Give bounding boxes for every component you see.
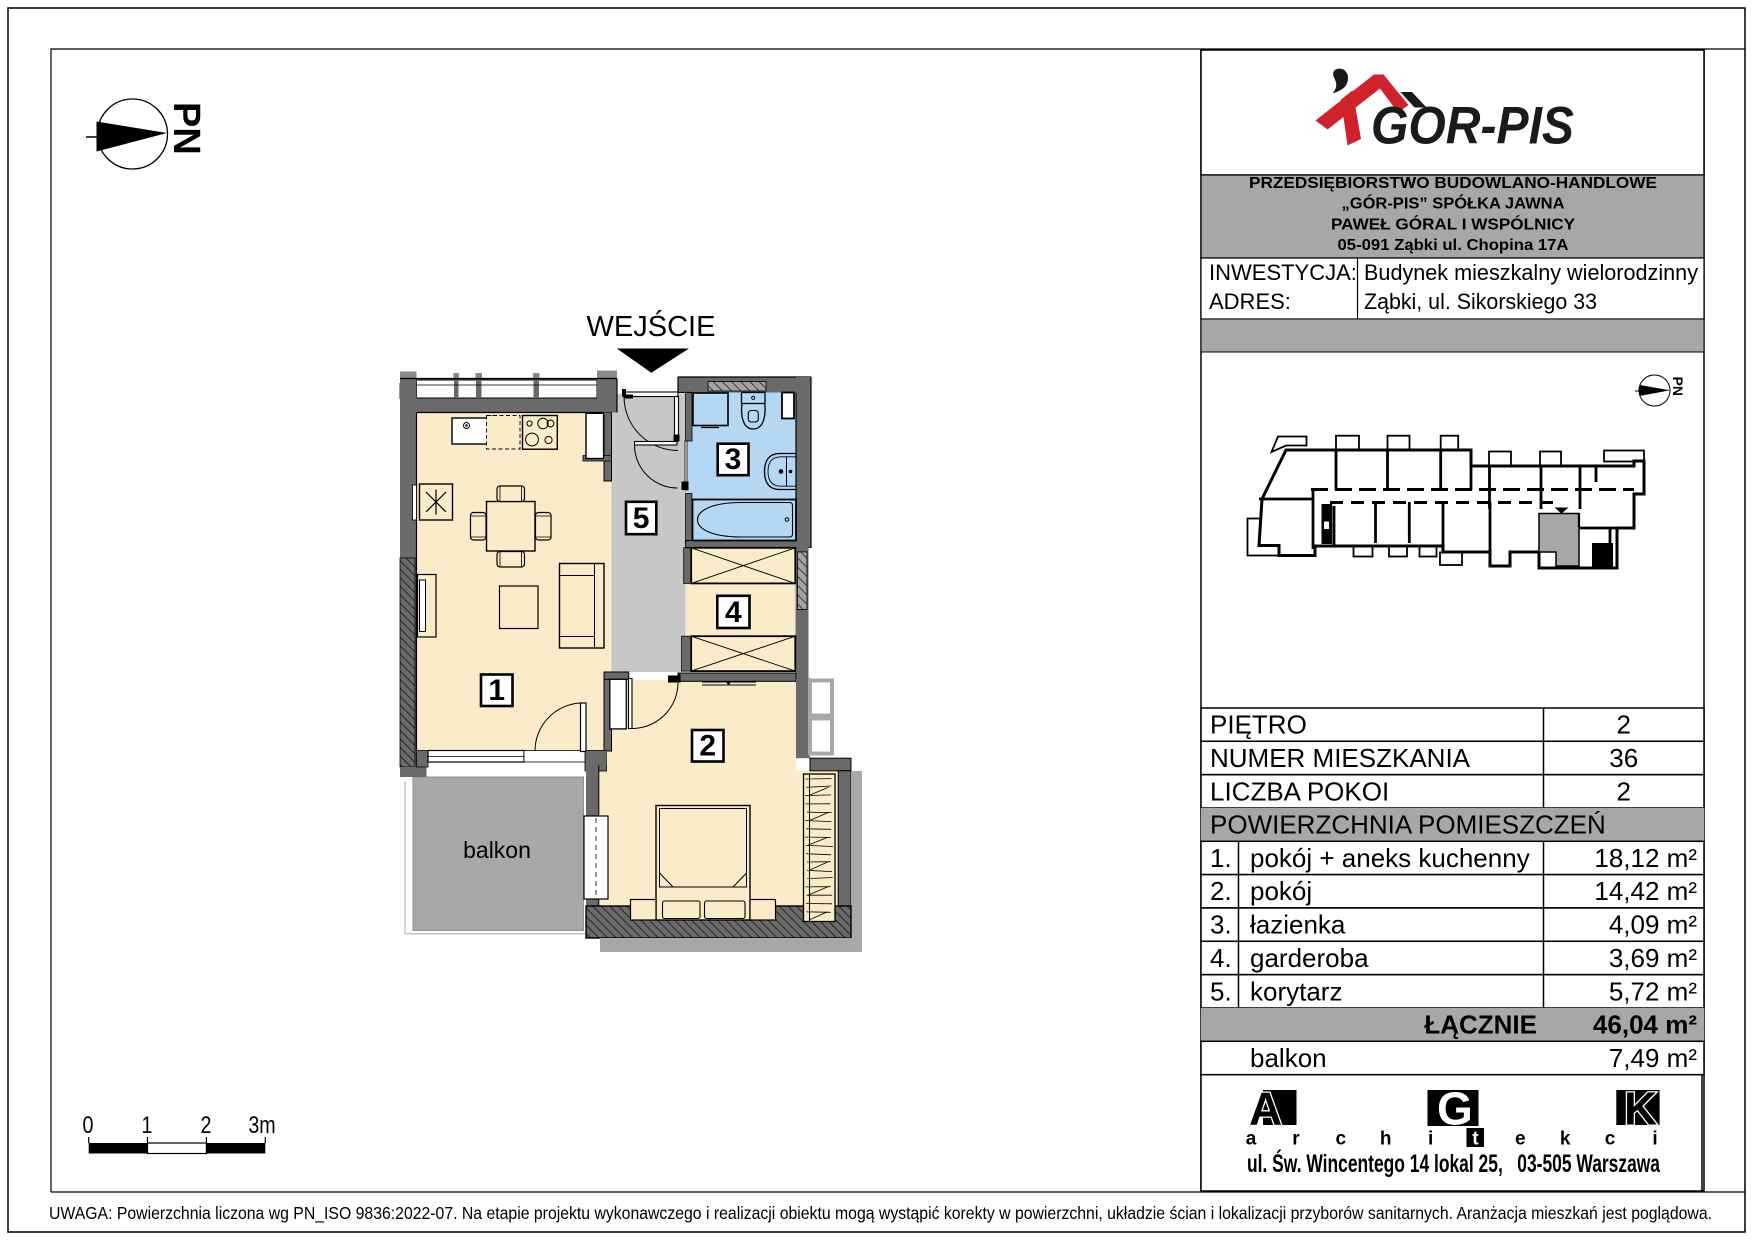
svg-text:PIĘTRO: PIĘTRO: [1210, 710, 1307, 740]
svg-text:2.: 2.: [1210, 876, 1232, 906]
svg-text:c: c: [1605, 1129, 1616, 1150]
svg-text:1: 1: [488, 674, 505, 707]
svg-text:3m: 3m: [248, 1111, 275, 1138]
svg-text:5.: 5.: [1210, 976, 1232, 1006]
svg-text:36: 36: [1609, 743, 1638, 773]
svg-text:4,09 m²: 4,09 m²: [1609, 910, 1697, 940]
svg-text:5: 5: [633, 502, 650, 535]
svg-text:G: G: [1437, 1083, 1473, 1135]
svg-text:LICZBA POKOI: LICZBA POKOI: [1210, 776, 1389, 806]
svg-text:5,72 m²: 5,72 m²: [1609, 976, 1697, 1006]
svg-text:4.: 4.: [1210, 943, 1232, 973]
svg-text:A: A: [1249, 1083, 1282, 1135]
svg-text:POWIERZCHNIA POMIESZCZEŃ: POWIERZCHNIA POMIESZCZEŃ: [1210, 810, 1606, 840]
svg-text:a: a: [1246, 1129, 1257, 1150]
svg-text:i: i: [1652, 1129, 1657, 1150]
svg-text:korytarz: korytarz: [1250, 976, 1342, 1006]
svg-text:h: h: [1380, 1129, 1392, 1150]
svg-text:i: i: [1428, 1129, 1433, 1150]
svg-text:„GÓR-PIS” SPÓŁKA JAWNA: „GÓR-PIS” SPÓŁKA JAWNA: [1342, 194, 1565, 213]
svg-text:2: 2: [1616, 776, 1630, 806]
svg-text:PRZEDSIĘBIORSTWO BUDOWLANO-HAN: PRZEDSIĘBIORSTWO BUDOWLANO-HANDLOWE: [1249, 175, 1657, 192]
svg-text:4: 4: [725, 596, 742, 629]
svg-text:0: 0: [83, 1111, 94, 1138]
svg-text:łazienka: łazienka: [1250, 910, 1346, 940]
svg-text:K: K: [1624, 1083, 1657, 1135]
svg-text:UWAGA: Powierzchnia liczona wg: UWAGA: Powierzchnia liczona wg PN_ISO 98…: [49, 1203, 1712, 1224]
svg-text:46,04 m²: 46,04 m²: [1593, 1010, 1697, 1040]
svg-text:garderoba: garderoba: [1250, 943, 1369, 973]
svg-text:INWESTYCJA:: INWESTYCJA:: [1209, 260, 1357, 285]
svg-text:7,49 m²: 7,49 m²: [1609, 1043, 1697, 1073]
svg-text:r: r: [1292, 1129, 1300, 1150]
svg-text:2: 2: [699, 730, 716, 763]
svg-text:WEJŚCIE: WEJŚCIE: [587, 309, 716, 343]
svg-text:3.: 3.: [1210, 910, 1232, 940]
svg-text:NUMER MIESZKANIA: NUMER MIESZKANIA: [1210, 743, 1471, 773]
svg-text:e: e: [1515, 1129, 1526, 1150]
svg-text:Budynek mieszkalny wielorodzin: Budynek mieszkalny wielorodzinny: [1364, 260, 1698, 285]
svg-text:3,69 m²: 3,69 m²: [1609, 943, 1697, 973]
svg-text:14,42 m²: 14,42 m²: [1594, 876, 1697, 906]
svg-text:2: 2: [1616, 710, 1630, 740]
svg-text:ul. Św. Wincentego 14 lokal 25: ul. Św. Wincentego 14 lokal 25, 03-505 W…: [1247, 1148, 1661, 1178]
svg-text:c: c: [1336, 1129, 1347, 1150]
svg-text:ADRES:: ADRES:: [1209, 289, 1291, 314]
svg-text:18,12 m²: 18,12 m²: [1594, 843, 1697, 873]
svg-text:PN: PN: [165, 102, 207, 155]
svg-text:balkon: balkon: [463, 837, 531, 863]
svg-text:2: 2: [201, 1111, 212, 1138]
svg-text:PAWEŁ GÓRAL I WSPÓLNICY: PAWEŁ GÓRAL I WSPÓLNICY: [1331, 215, 1575, 234]
svg-text:1.: 1.: [1210, 843, 1232, 873]
svg-text:Ząbki, ul. Sikorskiego 33: Ząbki, ul. Sikorskiego 33: [1364, 289, 1597, 314]
svg-text:PN: PN: [1670, 377, 1686, 396]
svg-text:t: t: [1472, 1129, 1479, 1150]
svg-text:pokój + aneks kuchenny: pokój + aneks kuchenny: [1250, 843, 1530, 873]
svg-text:1: 1: [142, 1111, 153, 1138]
svg-text:balkon: balkon: [1250, 1043, 1327, 1073]
svg-text:05-091 Ząbki ul. Chopina 17A: 05-091 Ząbki ul. Chopina 17A: [1338, 237, 1569, 254]
svg-text:GOR-PIS: GOR-PIS: [1371, 97, 1574, 156]
svg-text:pokój: pokój: [1250, 876, 1312, 906]
svg-text:ŁĄCZNIE: ŁĄCZNIE: [1424, 1010, 1537, 1040]
svg-text:3: 3: [725, 443, 742, 476]
svg-text:k: k: [1560, 1129, 1571, 1150]
